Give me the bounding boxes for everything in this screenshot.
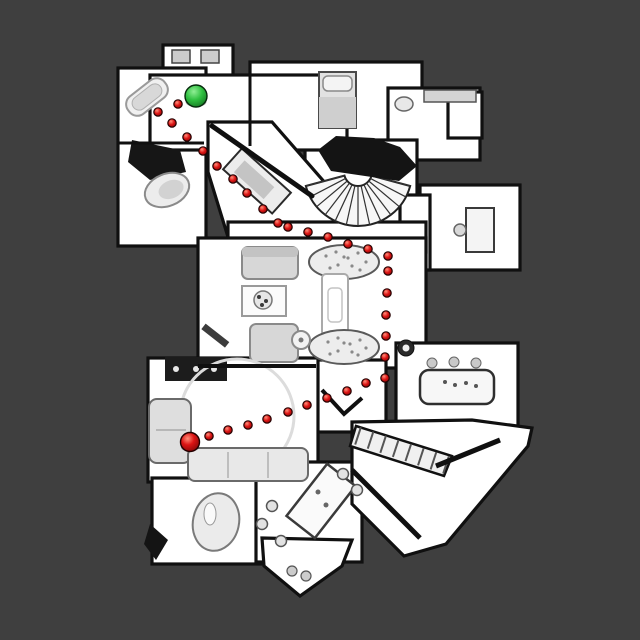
ring-object-hole: [403, 345, 410, 352]
path-waypoint: [323, 394, 331, 402]
planter-bottom-gravel-item: [326, 340, 329, 343]
path-waypoint: [381, 353, 389, 361]
planter-bottom-gravel-item: [350, 350, 353, 353]
planter-bottom-gravel-item: [342, 341, 345, 344]
planter-bottom: [309, 330, 379, 364]
path-waypoint: [229, 175, 237, 183]
dining-table-setting-item: [443, 380, 447, 384]
path-waypoint: [344, 240, 352, 248]
kitchen-island-items-item: [324, 503, 329, 508]
path-waypoint: [284, 408, 292, 416]
path-waypoint: [168, 119, 176, 127]
start-marker: [185, 85, 207, 107]
dining-chairs-item: [449, 357, 459, 367]
sink-right: [201, 50, 219, 63]
side-table-center: [299, 338, 304, 343]
path-waypoint: [381, 374, 389, 382]
dining-chairs-item: [471, 358, 481, 368]
path-waypoint: [384, 267, 392, 275]
counter-top-right: [424, 90, 476, 102]
path-waypoint: [259, 205, 267, 213]
planter-top-gravel-item: [342, 255, 345, 258]
planter-top-gravel-item: [364, 260, 367, 263]
path-waypoint: [154, 108, 162, 116]
path-waypoint: [199, 147, 207, 155]
sofa-top-back: [242, 247, 298, 257]
bar-stools-item: [352, 485, 363, 496]
bed-blanket: [319, 97, 356, 128]
dining-table-setting-item: [453, 383, 457, 387]
path-waypoint: [274, 219, 282, 227]
toilet-top-right: [395, 97, 413, 111]
bar-stools-item: [276, 536, 287, 547]
plant-leaves-item: [264, 299, 268, 303]
dining-chairs: [427, 357, 481, 368]
path-waypoint: [324, 233, 332, 241]
path-waypoint: [213, 162, 221, 170]
planter-bottom-gravel-item: [336, 336, 339, 339]
office-desk: [466, 208, 494, 252]
planter-top-gravel-item: [328, 266, 331, 269]
planter-bottom-gravel-item: [336, 349, 339, 352]
floor-map: [0, 0, 640, 640]
grand-piano-lid: [204, 503, 216, 525]
planter-top-gravel-item: [324, 254, 327, 257]
bar-stools-item: [267, 501, 278, 512]
planter-top-gravel-item: [350, 264, 353, 267]
sink-left: [172, 50, 190, 63]
plant-leaves-item: [257, 295, 261, 299]
path-waypoint: [224, 426, 232, 434]
planter-top-gravel-item: [334, 250, 337, 253]
path-waypoint: [384, 252, 392, 260]
path-waypoint: [382, 311, 390, 319]
planter-bottom-gravel-item: [328, 352, 331, 355]
tip-ovals-item: [287, 566, 297, 576]
path-waypoint: [205, 432, 213, 440]
sofa-bottom: [250, 324, 298, 362]
tip-ovals-item: [301, 571, 311, 581]
end-marker: [181, 433, 200, 452]
dining-chairs-item: [427, 358, 437, 368]
path-waypoint: [383, 289, 391, 297]
dining-table-setting-item: [474, 384, 478, 388]
planter-top-gravel-item: [346, 256, 349, 259]
path-waypoint: [243, 189, 251, 197]
path-waypoint: [244, 421, 252, 429]
floor-map-stage: [0, 0, 640, 640]
path-waypoint: [183, 133, 191, 141]
path-waypoint: [382, 332, 390, 340]
path-waypoint: [343, 387, 351, 395]
path-waypoint: [304, 228, 312, 236]
path-waypoint: [362, 379, 370, 387]
planter-top-gravel-item: [358, 268, 361, 271]
path-waypoint: [174, 100, 182, 108]
sofa-lower-left: [188, 448, 308, 481]
kitchen-island-items-item: [316, 490, 321, 495]
planter-bottom-gravel-item: [348, 342, 351, 345]
path-waypoint: [303, 401, 311, 409]
planter-top-gravel-item: [336, 263, 339, 266]
armchair-lower-left: [149, 399, 191, 463]
path-waypoint: [284, 223, 292, 231]
planter-top-gravel-item: [356, 251, 359, 254]
plant-leaves-item: [260, 303, 264, 307]
bar-stools-item: [257, 519, 268, 530]
bed-pillow: [323, 76, 352, 91]
planter-bottom-gravel-item: [358, 338, 361, 341]
path-waypoint: [263, 415, 271, 423]
office-chair: [454, 224, 466, 236]
bar-stools-item: [338, 469, 349, 480]
dining-table-setting-item: [464, 381, 468, 385]
planter-bottom-gravel-item: [364, 346, 367, 349]
path-waypoint: [364, 245, 372, 253]
planter-column: [322, 274, 348, 336]
dining-table: [420, 370, 494, 404]
planter-bottom-gravel-item: [356, 353, 359, 356]
dresser-knobs-item: [173, 366, 179, 372]
